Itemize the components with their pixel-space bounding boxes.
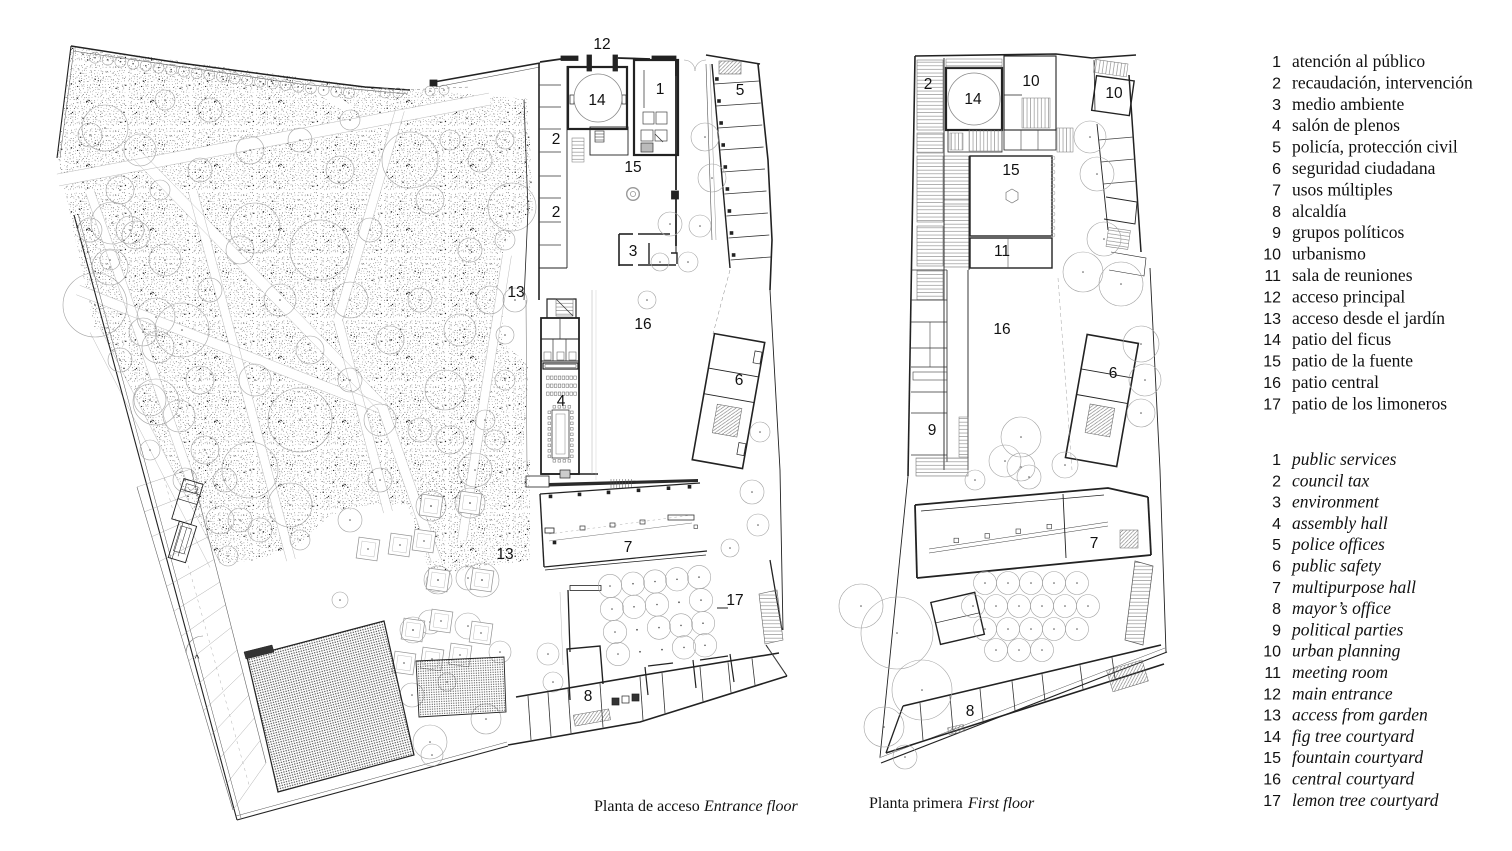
- svg-text:acceso principal: acceso principal: [1292, 286, 1405, 306]
- svg-text:fig tree courtyard: fig tree courtyard: [1292, 726, 1414, 746]
- svg-text:salón de plenos: salón de plenos: [1292, 115, 1400, 135]
- svg-text:10: 10: [1022, 73, 1040, 90]
- svg-text:14: 14: [1263, 729, 1281, 746]
- svg-text:11: 11: [994, 243, 1010, 260]
- svg-text:patio central: patio central: [1292, 372, 1379, 392]
- svg-text:6: 6: [735, 372, 744, 389]
- svg-text:central courtyard: central courtyard: [1292, 769, 1415, 789]
- svg-text:Planta de acceso: Planta de acceso: [594, 798, 700, 815]
- svg-text:1: 1: [656, 81, 665, 98]
- svg-text:12: 12: [1263, 289, 1281, 306]
- svg-text:urbanismo: urbanismo: [1292, 244, 1366, 264]
- svg-text:16: 16: [1263, 772, 1281, 789]
- svg-text:10: 10: [1105, 85, 1123, 102]
- svg-text:public safety: public safety: [1290, 556, 1381, 576]
- svg-text:13: 13: [496, 546, 513, 563]
- svg-text:8: 8: [584, 688, 593, 705]
- svg-text:1: 1: [1272, 452, 1281, 469]
- svg-text:Entrance floor: Entrance floor: [703, 798, 799, 815]
- svg-text:11: 11: [1264, 665, 1281, 682]
- svg-text:13: 13: [507, 284, 524, 301]
- svg-text:recaudación, intervención: recaudación, intervención: [1292, 72, 1473, 92]
- svg-text:6: 6: [1109, 365, 1118, 382]
- svg-text:main entrance: main entrance: [1292, 683, 1393, 703]
- svg-text:2: 2: [1272, 473, 1281, 490]
- svg-text:15: 15: [1263, 354, 1281, 371]
- svg-text:police offices: police offices: [1290, 534, 1385, 554]
- svg-text:1: 1: [1272, 54, 1281, 71]
- svg-text:council tax: council tax: [1292, 470, 1369, 490]
- svg-text:7: 7: [1272, 182, 1281, 199]
- svg-text:6: 6: [1272, 559, 1281, 576]
- svg-text:13: 13: [1263, 708, 1281, 725]
- svg-text:patio del ficus: patio del ficus: [1292, 329, 1391, 349]
- svg-text:access from garden: access from garden: [1292, 705, 1428, 725]
- svg-text:15: 15: [624, 159, 641, 176]
- svg-text:grupos políticos: grupos políticos: [1292, 222, 1404, 242]
- svg-text:multipurpose hall: multipurpose hall: [1292, 577, 1416, 597]
- svg-text:5: 5: [1272, 537, 1281, 554]
- svg-text:3: 3: [1272, 97, 1281, 114]
- svg-text:2: 2: [552, 131, 561, 148]
- svg-text:patio de los limoneros: patio de los limoneros: [1292, 393, 1447, 413]
- svg-text:5: 5: [736, 82, 745, 99]
- svg-text:fountain courtyard: fountain courtyard: [1292, 747, 1423, 767]
- svg-text:seguridad ciudadana: seguridad ciudadana: [1292, 158, 1436, 178]
- svg-text:mayor’s office: mayor’s office: [1292, 598, 1391, 618]
- svg-text:lemon tree courtyard: lemon tree courtyard: [1292, 790, 1439, 810]
- svg-text:17: 17: [726, 592, 743, 609]
- svg-text:patio de la fuente: patio de la fuente: [1292, 351, 1413, 371]
- svg-text:6: 6: [1272, 161, 1281, 178]
- svg-text:environment: environment: [1292, 492, 1380, 512]
- svg-text:10: 10: [1263, 644, 1281, 661]
- svg-text:2: 2: [552, 204, 561, 221]
- svg-text:8: 8: [1272, 204, 1281, 221]
- svg-text:16: 16: [993, 321, 1010, 338]
- svg-text:5: 5: [1272, 140, 1281, 157]
- svg-text:3: 3: [629, 243, 638, 260]
- svg-text:^: ^: [195, 654, 200, 665]
- svg-text:assembly hall: assembly hall: [1292, 513, 1388, 533]
- svg-text:8: 8: [966, 703, 975, 720]
- svg-text:9: 9: [928, 422, 937, 439]
- svg-text:9: 9: [1272, 225, 1281, 242]
- svg-text:7: 7: [1090, 535, 1099, 552]
- svg-text:16: 16: [634, 316, 651, 333]
- svg-text:8: 8: [1272, 601, 1281, 618]
- svg-text:7: 7: [1272, 580, 1281, 597]
- svg-text:17: 17: [1263, 793, 1281, 810]
- svg-text:7: 7: [624, 539, 633, 556]
- svg-text:2: 2: [1272, 75, 1281, 92]
- svg-text:15: 15: [1002, 162, 1019, 179]
- svg-text:16: 16: [1263, 375, 1281, 392]
- svg-text:First floor: First floor: [967, 795, 1035, 812]
- svg-text:13: 13: [1263, 311, 1281, 328]
- svg-text:Planta primera: Planta primera: [869, 795, 963, 812]
- svg-text:14: 14: [964, 91, 982, 108]
- svg-text:policía, protección civil: policía, protección civil: [1292, 137, 1458, 157]
- svg-text:12: 12: [593, 36, 610, 53]
- svg-text:14: 14: [588, 92, 606, 109]
- svg-text:public services: public services: [1290, 449, 1397, 469]
- svg-text:alcaldía: alcaldía: [1292, 201, 1347, 221]
- svg-text:medio ambiente: medio ambiente: [1292, 94, 1404, 114]
- svg-text:9: 9: [1272, 622, 1281, 639]
- svg-text:4: 4: [1272, 118, 1281, 135]
- svg-text:urban planning: urban planning: [1292, 641, 1401, 661]
- svg-text:15: 15: [1263, 750, 1281, 767]
- svg-text:3: 3: [1272, 495, 1281, 512]
- svg-text:17: 17: [1263, 396, 1281, 413]
- svg-text:sala de reuniones: sala de reuniones: [1292, 265, 1413, 285]
- svg-text:meeting room: meeting room: [1292, 662, 1388, 682]
- svg-text:2: 2: [924, 76, 933, 93]
- svg-text:atención al público: atención al público: [1292, 51, 1425, 71]
- svg-text:12: 12: [1263, 686, 1281, 703]
- svg-text:usos múltiples: usos múltiples: [1292, 179, 1393, 199]
- svg-text:acceso desde el jardín: acceso desde el jardín: [1292, 308, 1445, 328]
- svg-text:14: 14: [1263, 332, 1281, 349]
- svg-text:4: 4: [1272, 516, 1281, 533]
- svg-text:10: 10: [1263, 247, 1281, 264]
- svg-text:political parties: political parties: [1290, 619, 1404, 639]
- svg-text:11: 11: [1264, 268, 1281, 285]
